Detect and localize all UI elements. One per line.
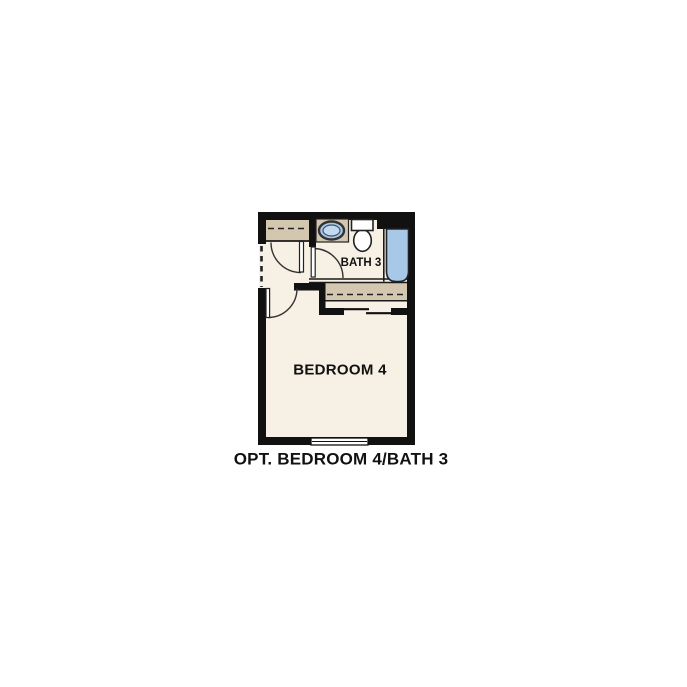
- bath-door-leaf: [311, 247, 315, 277]
- window: [311, 438, 368, 445]
- bedroom-room-label: BEDROOM 4: [293, 362, 387, 379]
- wall-closet-front-right: [391, 308, 415, 315]
- wall-bath-divider: [309, 219, 316, 247]
- floor-plan-drawing: BATH 3 BEDROOM 4 OPT. BEDROOM 4/BATH 3: [0, 0, 687, 687]
- entry-closet-shelf: [266, 219, 309, 241]
- plan-caption: OPT. BEDROOM 4/BATH 3: [234, 450, 449, 469]
- toilet-bowl: [354, 230, 372, 252]
- wall-left-lower: [258, 288, 266, 445]
- wall-closet-front-left: [319, 308, 344, 315]
- closet-door-leaf: [300, 242, 304, 273]
- floor-plan-page: BATH 3 BEDROOM 4 OPT. BEDROOM 4/BATH 3: [0, 0, 687, 687]
- wall-left-upper: [258, 212, 266, 244]
- bedroom-closet-shelf: [325, 283, 407, 301]
- bathtub: [387, 229, 409, 282]
- bedroom-door-leaf: [266, 289, 270, 318]
- toilet-tank: [352, 220, 374, 231]
- sink-basin-inner: [323, 225, 340, 236]
- bath-room-label: BATH 3: [341, 257, 382, 269]
